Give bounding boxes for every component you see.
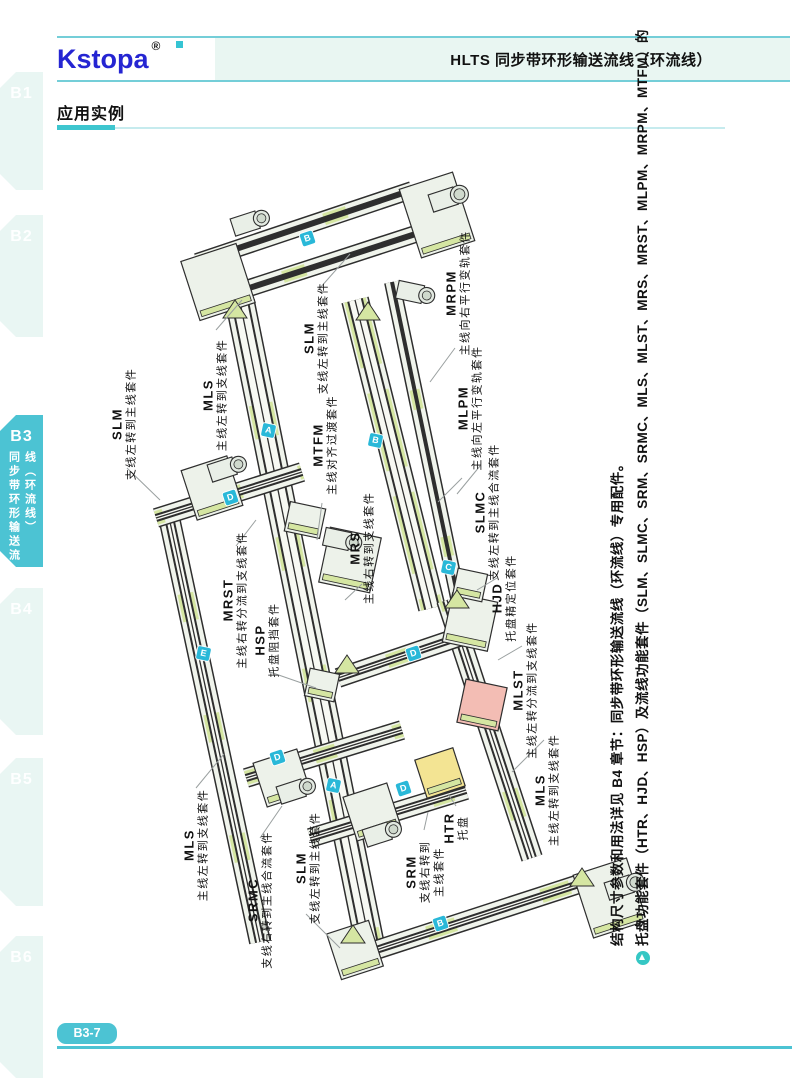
section-badge-d: D [269,749,285,765]
note-line2-text: 结构尺寸参数和用法详见 B4 章节：同步带环形输送流线（环流线）专用配件。 [605,457,630,946]
play-bullet-icon [636,951,650,965]
note-line-2: 结构尺寸参数和用法详见 B4 章节：同步带环形输送流线（环流线）专用配件。 [605,175,630,965]
diagram-note: 结构尺寸参数和用法详见 B4 章节：同步带环形输送流线（环流线）专用配件。 托盘… [605,175,655,965]
section-badge-d: D [405,645,421,661]
footer-rule [57,1046,792,1049]
section-badge-e: E [195,645,210,660]
application-example-diagram: MRPM主线向右平行变轨套件SLM支线左转到主线套件MLS主线左转到支线套件SL… [0,0,800,1086]
section-badge-a: A [325,777,340,792]
section-badge-b: B [367,432,382,447]
section-badge-c: C [440,559,455,574]
note-line1-text: 托盘功能套件（HTR、HJD、HSP）及流线功能套件（SLM、SLMC、SRM、… [630,29,655,946]
section-badge-b: B [432,915,448,931]
diagram-section-badges: BABDCEDDADB [0,0,800,1086]
catalog-page: B1 B2 B3 同步带环形输送流线（环流线） B4 B5 B6 Kstopa®… [0,0,800,1086]
section-badge-a: A [260,422,275,437]
section-badge-b: B [299,230,315,246]
section-badge-d: D [222,489,238,505]
note-line-1: 托盘功能套件（HTR、HJD、HSP）及流线功能套件（SLM、SLMC、SRM、… [630,175,655,965]
section-badge-d: D [395,780,411,796]
page-number-pill: B3-7 [57,1023,117,1044]
